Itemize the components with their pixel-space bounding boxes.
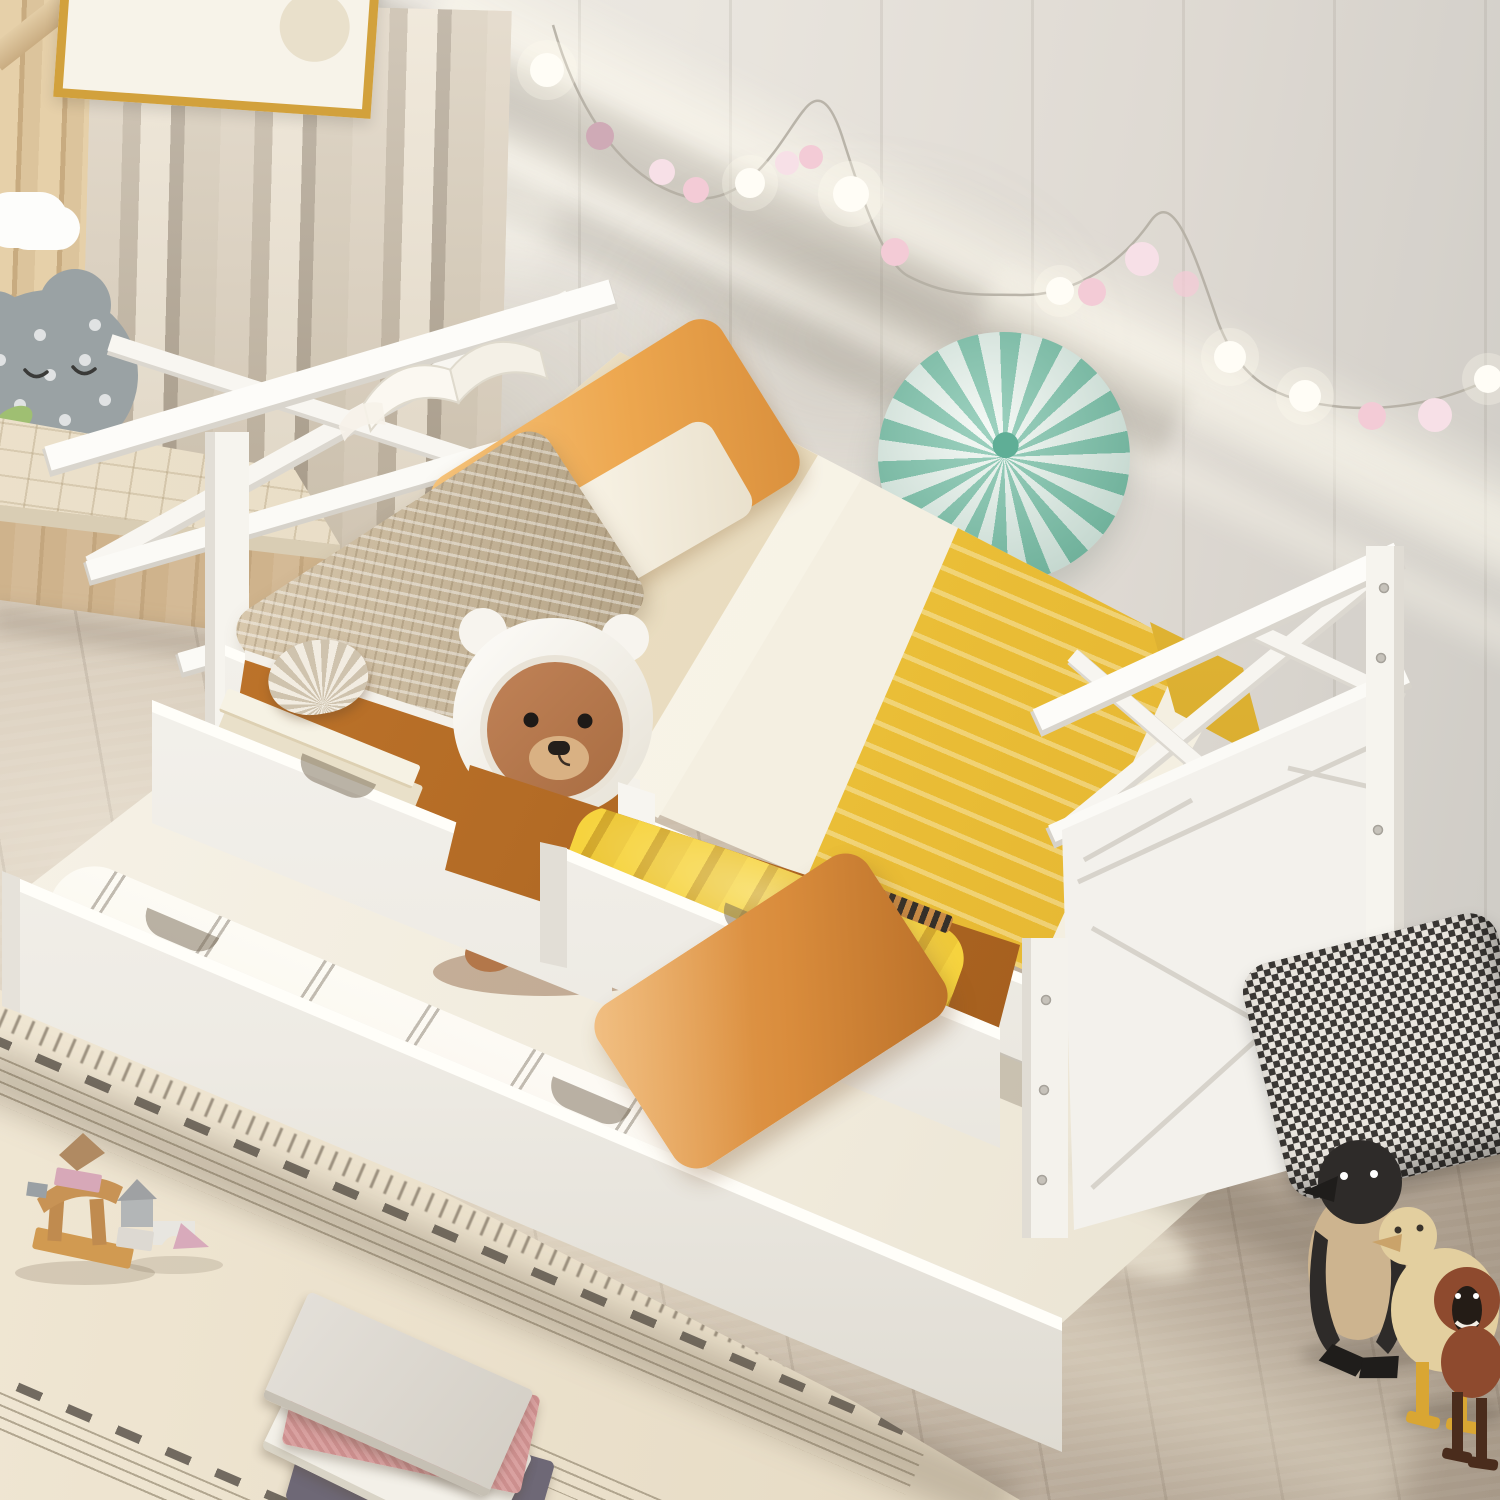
bear-eye	[524, 713, 539, 728]
pillow-center-button	[991, 430, 1020, 459]
wooden-penguin	[1302, 1140, 1408, 1382]
kids-bedroom-product-photo: BROWN	[0, 0, 1500, 1500]
block-houses	[116, 1179, 209, 1251]
block-arch-tower	[26, 1133, 134, 1269]
stacked-books	[255, 1330, 595, 1500]
wooden-bird-figurines	[1280, 1100, 1500, 1500]
frame-artwork	[277, 0, 352, 64]
open-book	[330, 312, 570, 442]
bear-eye	[578, 714, 593, 729]
cloud-decor	[0, 192, 68, 248]
wooden-block-toys	[15, 1125, 230, 1290]
footboard-top-rail	[1048, 558, 1388, 715]
wooden-monkey	[1434, 1267, 1500, 1471]
bear-nose	[548, 741, 570, 755]
